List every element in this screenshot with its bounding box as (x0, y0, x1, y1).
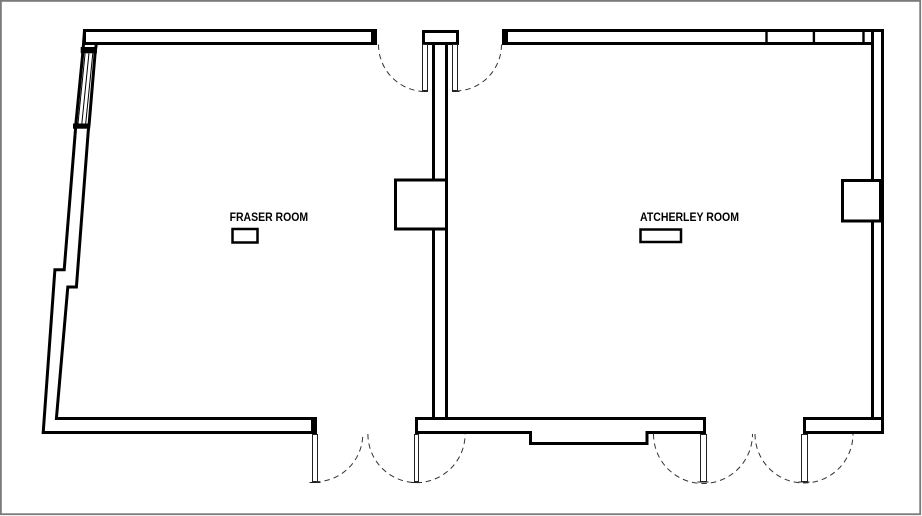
svg-text:FRASER ROOM: FRASER ROOM (230, 210, 309, 224)
svg-text:ATCHERLEY ROOM: ATCHERLEY ROOM (640, 210, 739, 224)
